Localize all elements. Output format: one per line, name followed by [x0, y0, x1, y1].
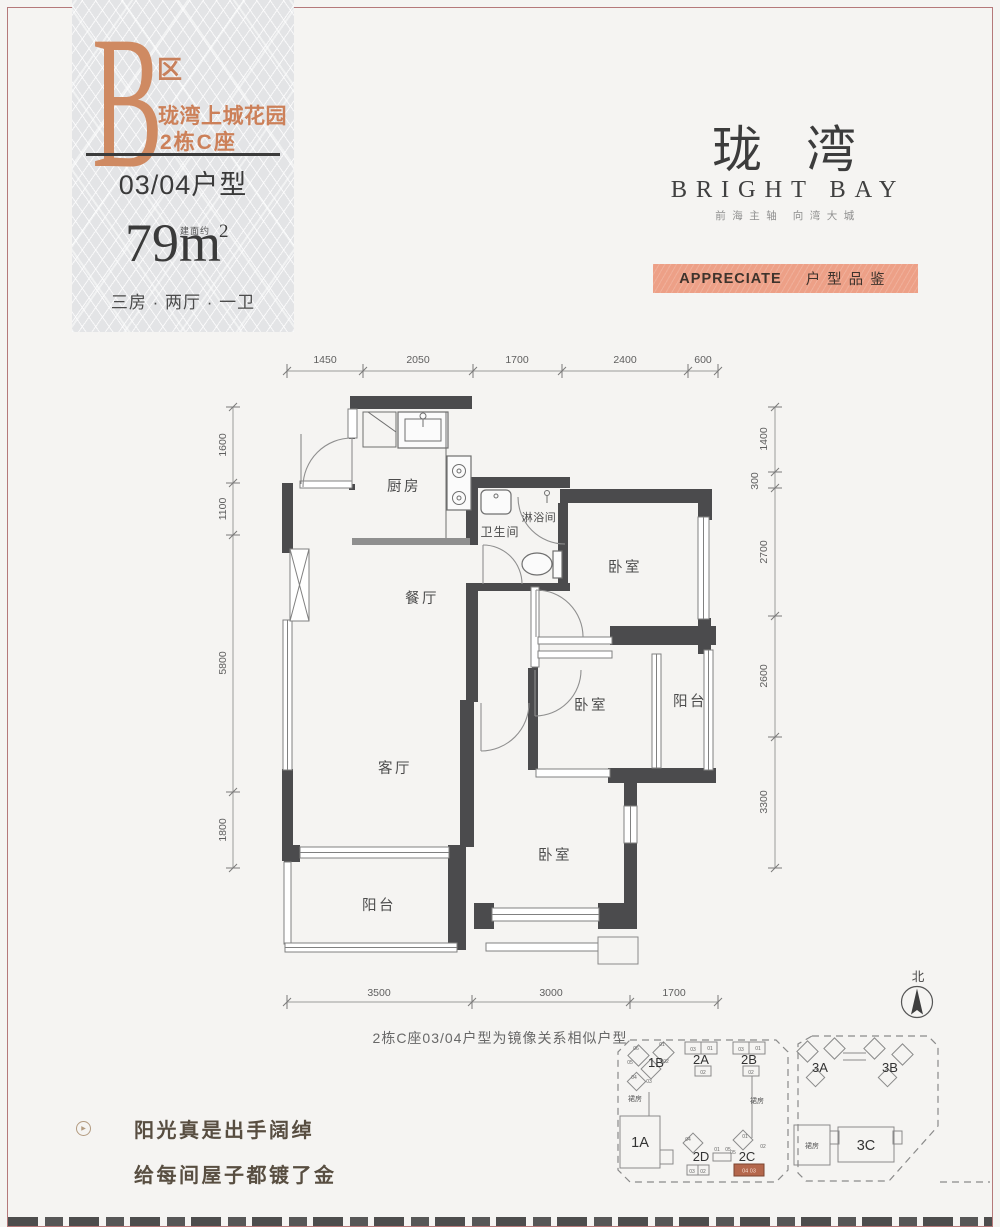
- label-kitchen: 厨房: [387, 478, 421, 495]
- area-note: 建面约: [180, 224, 210, 237]
- dimensions-right: 1400 300 2700 2600 3300: [749, 403, 782, 872]
- svg-text:1B: 1B: [648, 1055, 664, 1070]
- svg-text:2A: 2A: [693, 1052, 709, 1067]
- svg-text:2C: 2C: [739, 1149, 756, 1164]
- svg-text:1600: 1600: [217, 433, 229, 457]
- svg-text:1700: 1700: [505, 354, 529, 366]
- svg-text:3B: 3B: [882, 1060, 898, 1075]
- tower-1b: 06 01 05 02 04 03 1B: [627, 1042, 674, 1091]
- svg-text:2B: 2B: [741, 1052, 757, 1067]
- label-shower: 淋浴间: [522, 511, 557, 524]
- svg-text:3000: 3000: [539, 987, 563, 999]
- toilet: [522, 553, 552, 575]
- unit-badge-panel: B 区 珑湾上城花园 2栋C座 03/04户型 79m 建面约 2 三房 · 两…: [72, 0, 294, 332]
- banner-english: APPRECIATE: [679, 271, 781, 287]
- svg-text:2D: 2D: [693, 1149, 710, 1164]
- dimensions-left: 1600 1100 5800 1800: [217, 403, 240, 872]
- svg-text:1450: 1450: [313, 354, 337, 366]
- room-count-summary: 三房 · 两厅 · 一卫: [72, 288, 294, 313]
- brand-tagline: 前海主轴 向湾大城: [648, 208, 928, 223]
- svg-text:02: 02: [748, 1070, 754, 1076]
- svg-text:3500: 3500: [367, 987, 391, 999]
- tower-2b: 03 01 2B 02: [733, 1042, 765, 1076]
- svg-text:02: 02: [700, 1070, 706, 1076]
- svg-text:600: 600: [694, 354, 712, 366]
- svg-text:05: 05: [730, 1150, 736, 1156]
- banner-chinese: 户型品鉴: [806, 268, 892, 289]
- svg-text:04 03: 04 03: [742, 1169, 756, 1175]
- building-name: 2栋C座: [160, 126, 237, 156]
- area-superscript: 2: [219, 221, 229, 243]
- label-dining: 餐厅: [405, 590, 439, 607]
- label-bedroom-3: 卧室: [538, 847, 572, 864]
- floor-plan: 厨房 卫生间 淋浴间 卧室 餐厅 卧室 阳台 客厅 卧室 阳台 1450 205…: [200, 330, 800, 1020]
- dimensions-bottom: 3500 3000 1700: [283, 987, 722, 1009]
- unit-type: 03/04户型: [72, 163, 294, 202]
- slogan-line-1: 阳光真是出手阔绰: [134, 1114, 314, 1143]
- label-living: 客厅: [378, 760, 412, 777]
- label-bath: 卫生间: [480, 525, 519, 539]
- tower-bridge: 01 05: [713, 1147, 731, 1161]
- bottom-strip: [8, 1217, 992, 1226]
- svg-text:02: 02: [760, 1144, 766, 1150]
- svg-text:5800: 5800: [217, 651, 229, 675]
- label-balcony-mid: 阳台: [673, 693, 707, 710]
- svg-text:05: 05: [627, 1060, 633, 1066]
- svg-text:06: 06: [633, 1046, 639, 1052]
- tower-1a: 1A: [620, 1116, 673, 1168]
- svg-text:3300: 3300: [758, 790, 770, 814]
- slogan-line-2: 给每间屋子都镀了金: [134, 1159, 337, 1188]
- svg-text:1A: 1A: [631, 1135, 649, 1151]
- svg-text:2700: 2700: [758, 540, 770, 564]
- svg-text:01: 01: [714, 1147, 720, 1153]
- svg-text:3C: 3C: [857, 1138, 876, 1154]
- shower-head: [545, 491, 550, 496]
- site-plan: 06 01 05 02 04 03 1B 03 01 2A 02 03 01 2…: [600, 1025, 995, 1190]
- svg-text:04: 04: [631, 1075, 637, 1081]
- svg-text:04: 04: [685, 1137, 691, 1143]
- svg-text:1800: 1800: [217, 818, 229, 842]
- tower-3b: 3B: [864, 1038, 913, 1087]
- svg-text:01: 01: [659, 1042, 665, 1048]
- zone-suffix: 区: [157, 50, 182, 86]
- svg-text:3A: 3A: [812, 1060, 828, 1075]
- north-compass: 北: [885, 960, 955, 1025]
- svg-text:2600: 2600: [758, 664, 770, 688]
- svg-text:1400: 1400: [758, 427, 770, 451]
- svg-text:03: 03: [689, 1169, 695, 1175]
- fridge-space: [363, 412, 396, 447]
- svg-text:03: 03: [646, 1079, 652, 1085]
- dimensions-top: 1450 2050 1700 2400 600: [283, 354, 722, 378]
- label-balcony-bottom: 阳台: [362, 897, 396, 914]
- tower-2c: 01 05 02 2C 04 03: [730, 1130, 766, 1176]
- svg-text:2400: 2400: [613, 354, 637, 366]
- svg-text:02: 02: [700, 1169, 706, 1175]
- podium-label-right: 裙房: [750, 1096, 764, 1105]
- svg-text:1700: 1700: [662, 987, 686, 999]
- svg-text:裙房: 裙房: [805, 1141, 819, 1150]
- block2-boundary: [798, 1036, 938, 1181]
- kitchen-fixtures: [363, 412, 471, 538]
- tower-3a: 3A: [797, 1038, 845, 1087]
- compass-needle: [911, 989, 923, 1015]
- label-bedroom-1: 卧室: [608, 559, 642, 576]
- tower-3c: 裙房 3C: [794, 1125, 902, 1165]
- tower-2a: 03 01 2A 02: [685, 1042, 717, 1076]
- svg-text:1100: 1100: [217, 498, 229, 521]
- appreciate-banner: APPRECIATE 户型品鉴: [653, 264, 918, 293]
- play-icon: ▶: [76, 1121, 91, 1136]
- badge-divider: [86, 153, 280, 156]
- svg-text:2050: 2050: [406, 354, 430, 366]
- svg-text:02: 02: [663, 1059, 669, 1065]
- walls: [282, 396, 716, 950]
- logo-english: BRIGHT BAY: [648, 176, 928, 204]
- label-bedroom-2: 卧室: [574, 697, 608, 714]
- north-label: 北: [912, 970, 925, 984]
- svg-text:01: 01: [742, 1134, 748, 1140]
- tower-2d: 04 2D 03 02: [683, 1133, 709, 1175]
- svg-text:300: 300: [749, 472, 761, 490]
- podium-label-left: 裙房: [628, 1094, 642, 1103]
- logo-chinese: 珑湾: [712, 110, 900, 182]
